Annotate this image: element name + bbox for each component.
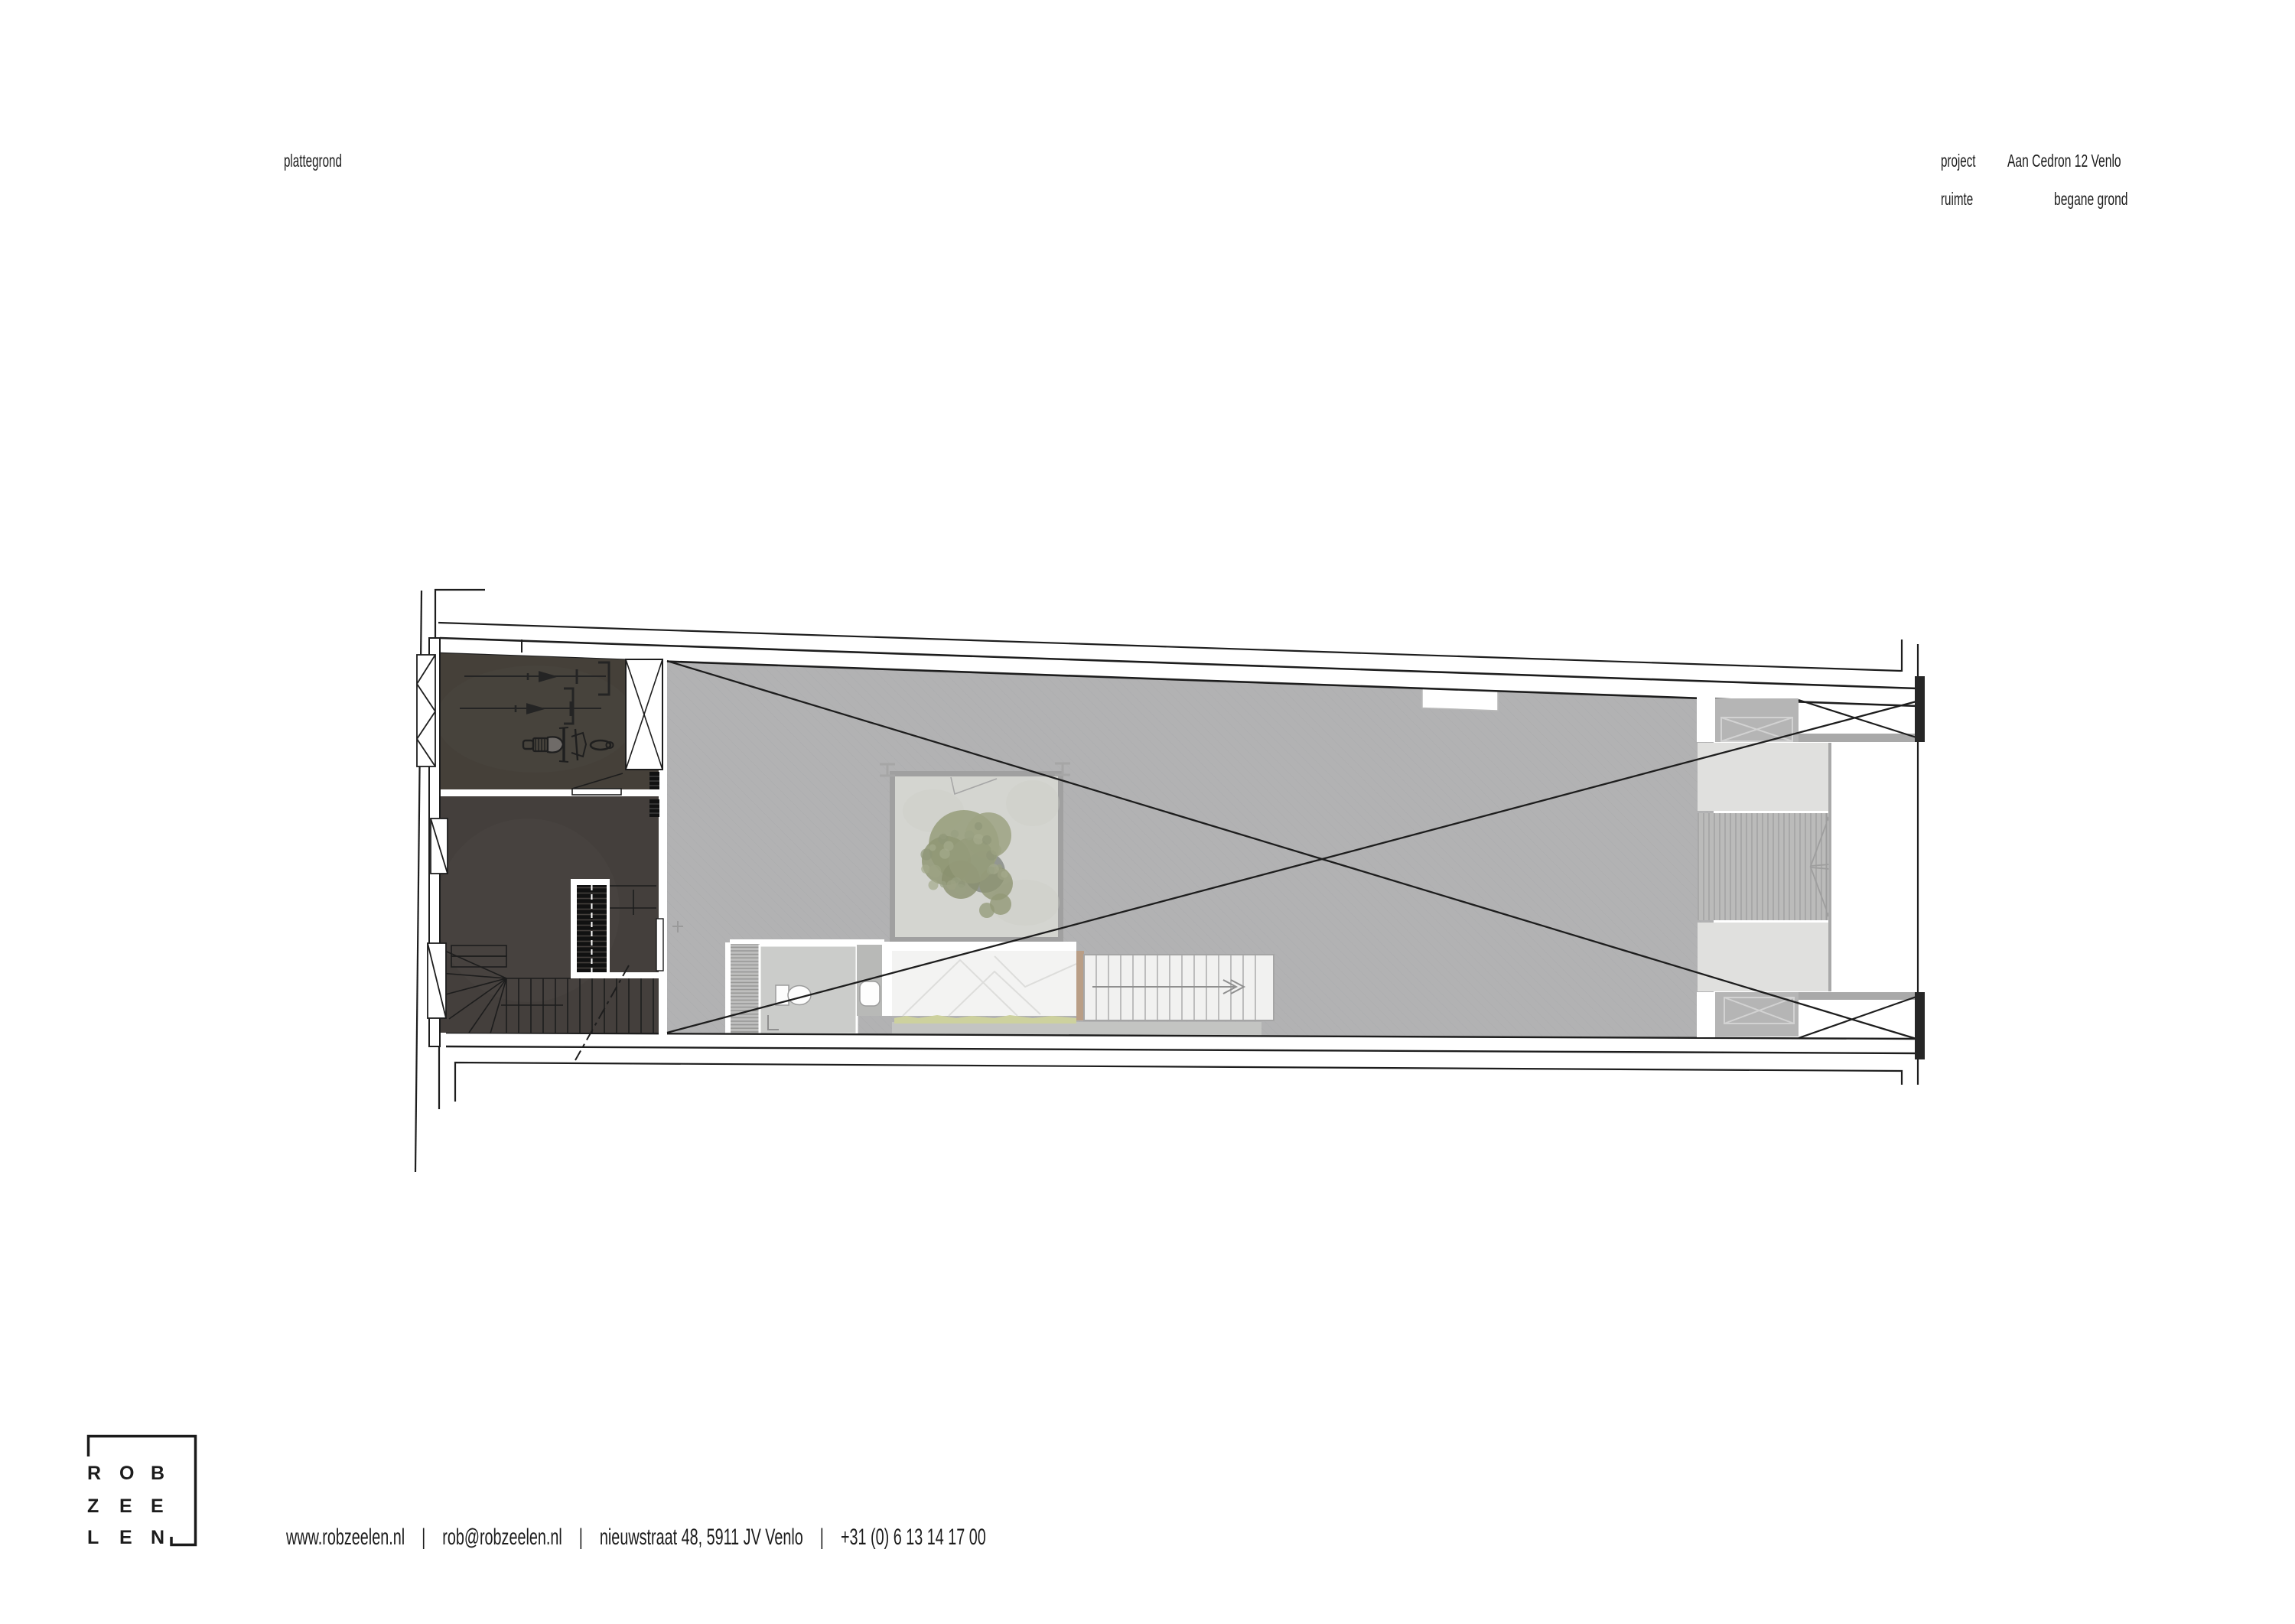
svg-text:plattegrond: plattegrond (284, 151, 342, 171)
svg-text:begane grond: begane grond (2054, 190, 2127, 210)
svg-text:B: B (151, 1463, 164, 1484)
svg-text:E: E (151, 1495, 164, 1517)
svg-text:R: R (87, 1463, 101, 1484)
svg-text:O: O (119, 1463, 134, 1484)
svg-text:project: project (1941, 151, 1976, 171)
svg-text:Z: Z (87, 1495, 99, 1517)
svg-text:L: L (87, 1527, 99, 1548)
svg-text:E: E (119, 1495, 132, 1517)
svg-text:ruimte: ruimte (1941, 190, 1973, 210)
svg-text:Aan Cedron 12 Venlo: Aan Cedron 12 Venlo (2007, 151, 2121, 171)
svg-text:N: N (151, 1527, 164, 1548)
svg-text:E: E (119, 1527, 132, 1548)
svg-text:www.robzeelen.nl | rob@r: www.robzeelen.nl | rob@robzeelen.nl | ni… (285, 1525, 986, 1550)
